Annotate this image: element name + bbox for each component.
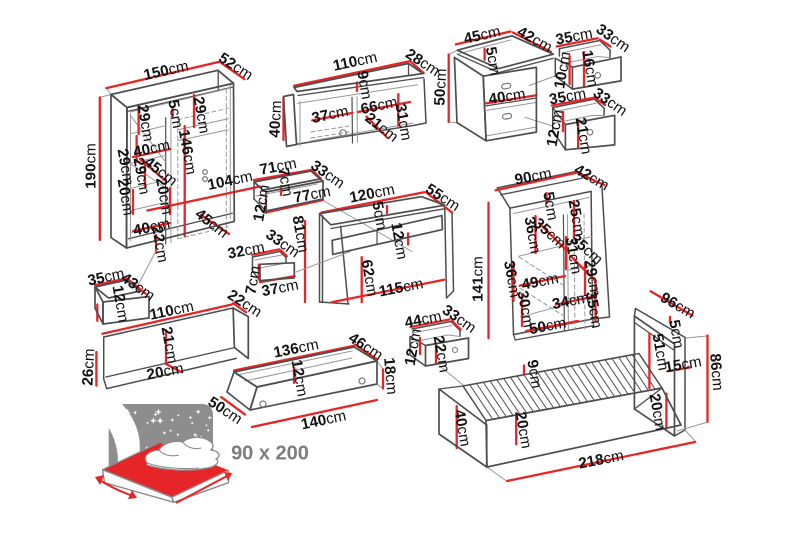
svg-text:190cm: 190cm [82, 143, 99, 189]
svg-text:50cm: 50cm [431, 68, 450, 106]
svg-text:141cm: 141cm [469, 256, 486, 302]
svg-text:40cm: 40cm [266, 100, 285, 138]
svg-text:90 x 200: 90 x 200 [231, 443, 309, 465]
svg-text:18cm: 18cm [380, 357, 400, 395]
svg-text:86cm: 86cm [706, 353, 726, 391]
svg-text:26cm: 26cm [79, 348, 98, 386]
